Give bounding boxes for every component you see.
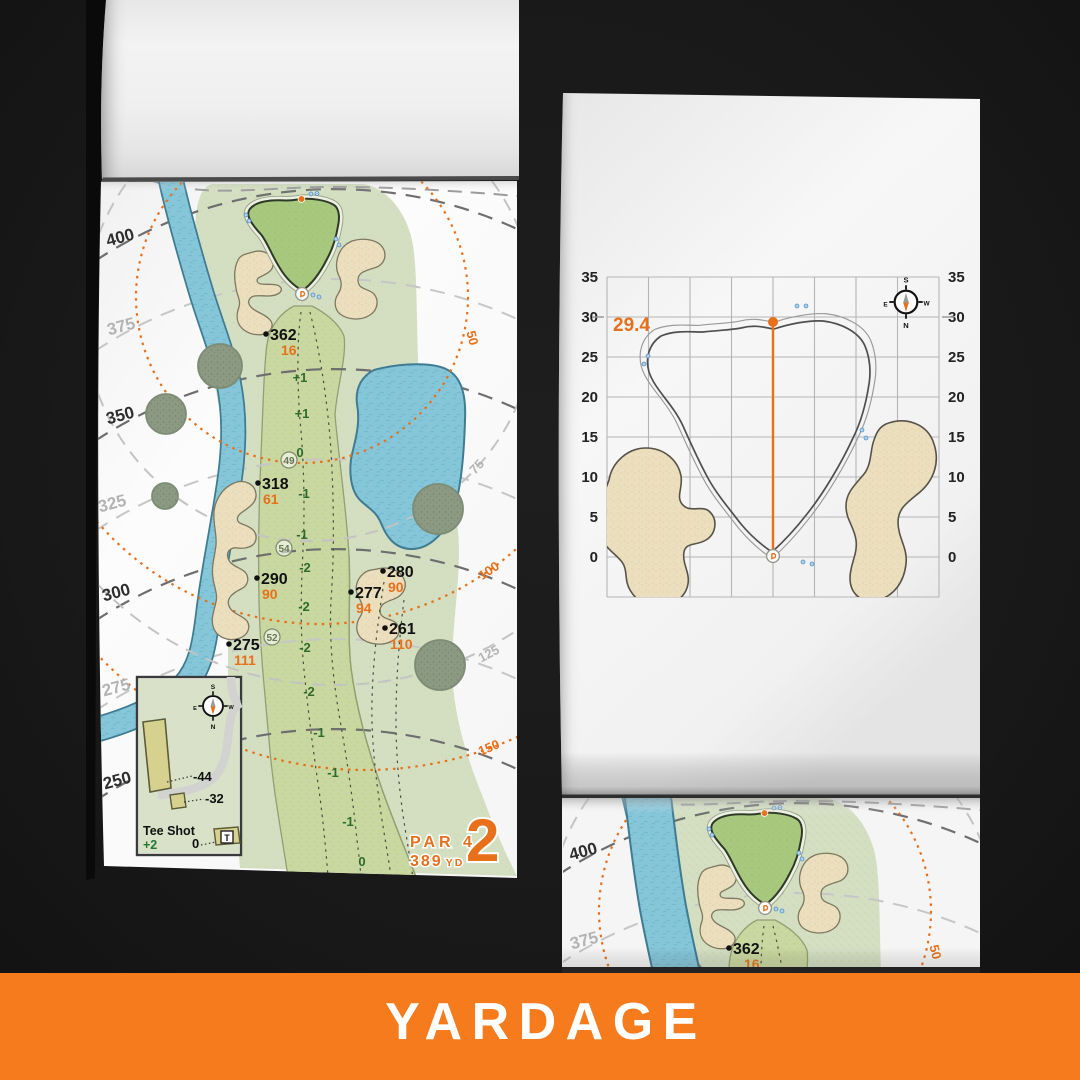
svg-text:25: 25	[948, 349, 965, 366]
svg-text:5: 5	[948, 509, 956, 526]
svg-text:0: 0	[590, 549, 598, 566]
svg-text:15: 15	[581, 429, 598, 446]
svg-text:5: 5	[590, 509, 598, 526]
svg-text:29.4: 29.4	[613, 315, 650, 336]
svg-text:10: 10	[948, 469, 965, 486]
svg-text:20: 20	[581, 389, 598, 406]
svg-text:0: 0	[948, 549, 956, 566]
svg-text:35: 35	[948, 269, 965, 286]
svg-text:YARDAGE: YARDAGE	[385, 993, 707, 1051]
svg-text:20: 20	[948, 389, 965, 406]
svg-text:15: 15	[948, 429, 965, 446]
svg-text:25: 25	[581, 349, 598, 366]
svg-text:35: 35	[581, 269, 598, 286]
svg-text:10: 10	[581, 469, 598, 486]
